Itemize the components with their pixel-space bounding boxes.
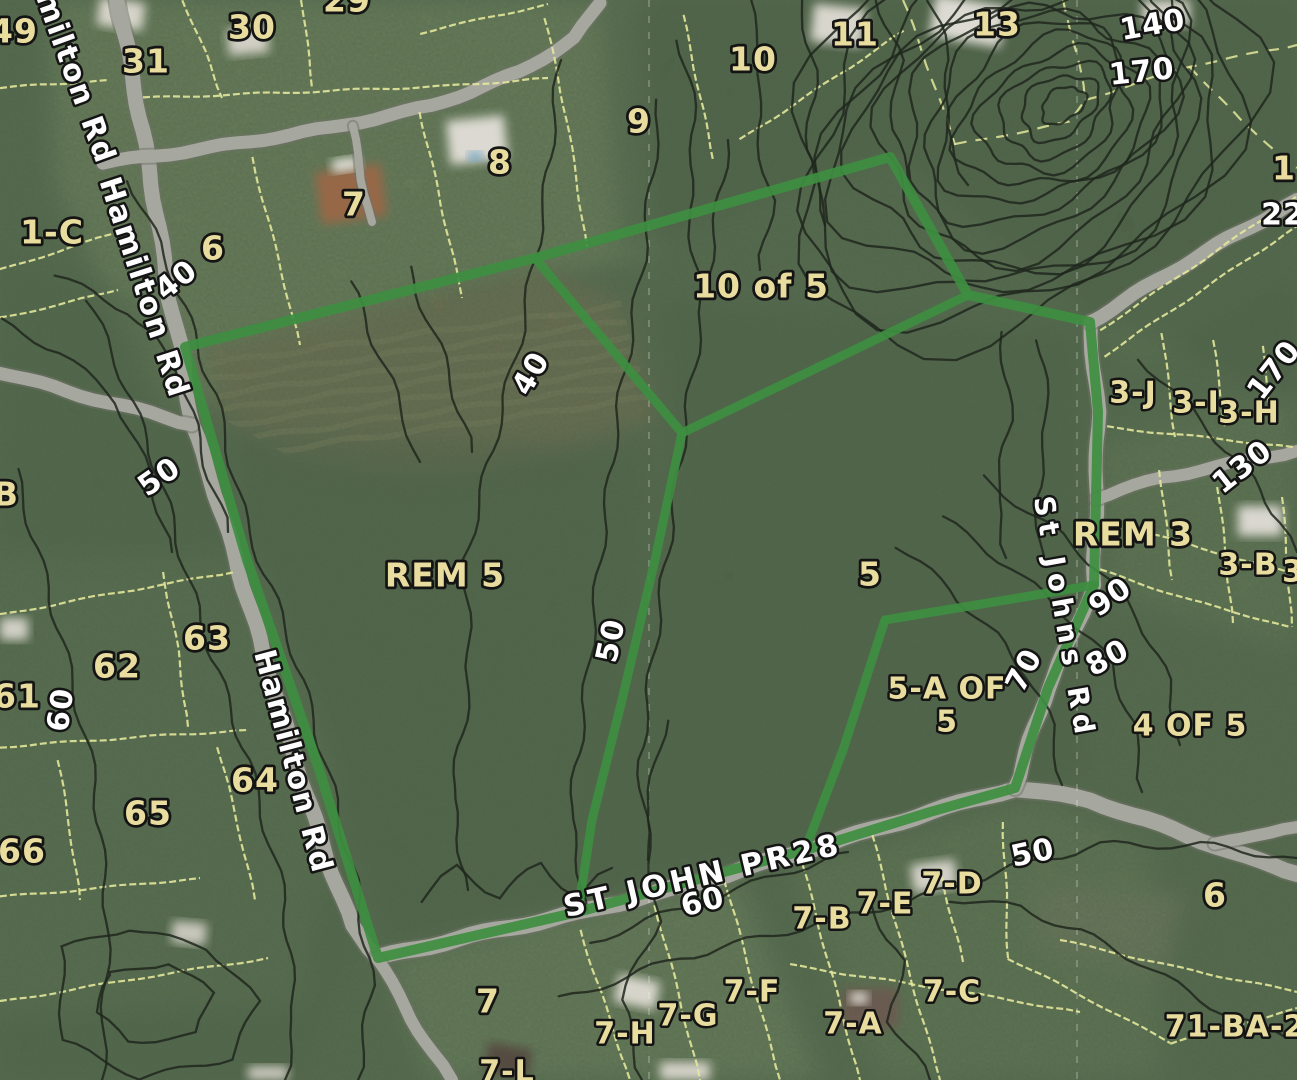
building xyxy=(850,992,868,1004)
parcel-label: 6 xyxy=(1203,876,1227,915)
parcel-label: REM 5 xyxy=(385,556,505,595)
parcel-label: 61 xyxy=(0,677,41,716)
parcel-label: 11 xyxy=(831,15,879,54)
parcel-label: 71-BA-2 xyxy=(1165,1010,1297,1045)
building xyxy=(660,1062,710,1080)
aerial-map-canvas[interactable]: Hamilton RdHamilton RdHamilton RdST JOHN… xyxy=(0,0,1297,1080)
parcel-label: 7-F xyxy=(724,975,781,1010)
parcel-label: 62 xyxy=(93,647,141,686)
parcel-label: 3 xyxy=(1282,555,1297,590)
parcel-label: 29 xyxy=(323,0,371,20)
parcel-label: 7-A xyxy=(823,1007,883,1042)
parcel-label: 4 OF 5 xyxy=(1133,709,1248,744)
parcel-label: 7-C xyxy=(923,975,981,1010)
parcel-label: 13 xyxy=(973,5,1021,44)
parcel-label: 1-C xyxy=(20,213,84,252)
contour-elevation-label: 60 xyxy=(41,686,82,734)
contour-elevation-label: 22 xyxy=(1261,198,1297,233)
parcel-label: 3-I xyxy=(1172,386,1220,421)
parcel-label: 63 xyxy=(183,619,231,658)
parcel-label: 7-G xyxy=(658,999,719,1034)
parcel-label: 10 of 5 xyxy=(693,267,829,306)
parcel-label: 65 xyxy=(124,794,172,833)
parcel-label: 5 xyxy=(858,555,882,594)
parcel-label: 7-L xyxy=(479,1055,534,1080)
parcel-label: 66 xyxy=(0,832,46,871)
parcel-label: 3-B xyxy=(1218,548,1277,583)
building xyxy=(248,1066,288,1080)
parcel-label: 10 xyxy=(729,40,777,79)
parcel-label: 7-B xyxy=(792,902,851,937)
contour-elevation-label: 170 xyxy=(1107,51,1176,93)
parcel-label: 6 xyxy=(201,229,225,268)
building xyxy=(1238,506,1282,536)
parcel-label: 9 xyxy=(627,102,651,141)
parcel-label: 64 xyxy=(231,761,279,800)
parcel-label: 7-H xyxy=(594,1017,655,1052)
parcel-label: 3-J xyxy=(1109,376,1157,411)
building xyxy=(0,618,28,640)
parcel-label: 5-A OF xyxy=(888,672,1007,707)
parcel-label: 5 xyxy=(936,705,958,740)
parcel-label: 30 xyxy=(228,8,276,47)
parcel-label: 7-D xyxy=(921,867,982,902)
parcel-label: B xyxy=(0,475,19,514)
parcel-label: 3-H xyxy=(1218,396,1279,431)
parcel-label: 7-E xyxy=(857,887,914,922)
parcel-label: 7 xyxy=(476,982,500,1021)
parcel-label: 7 xyxy=(342,185,366,224)
parcel-label: 8 xyxy=(488,143,512,182)
parcel-label: 1 xyxy=(1272,149,1296,188)
map-view[interactable]: Hamilton RdHamilton RdHamilton RdST JOHN… xyxy=(0,0,1297,1080)
building xyxy=(468,152,482,161)
parcel-label: 31 xyxy=(122,42,170,81)
parcel-label: 49 xyxy=(0,12,38,51)
parcel-label: REM 3 xyxy=(1073,515,1193,554)
